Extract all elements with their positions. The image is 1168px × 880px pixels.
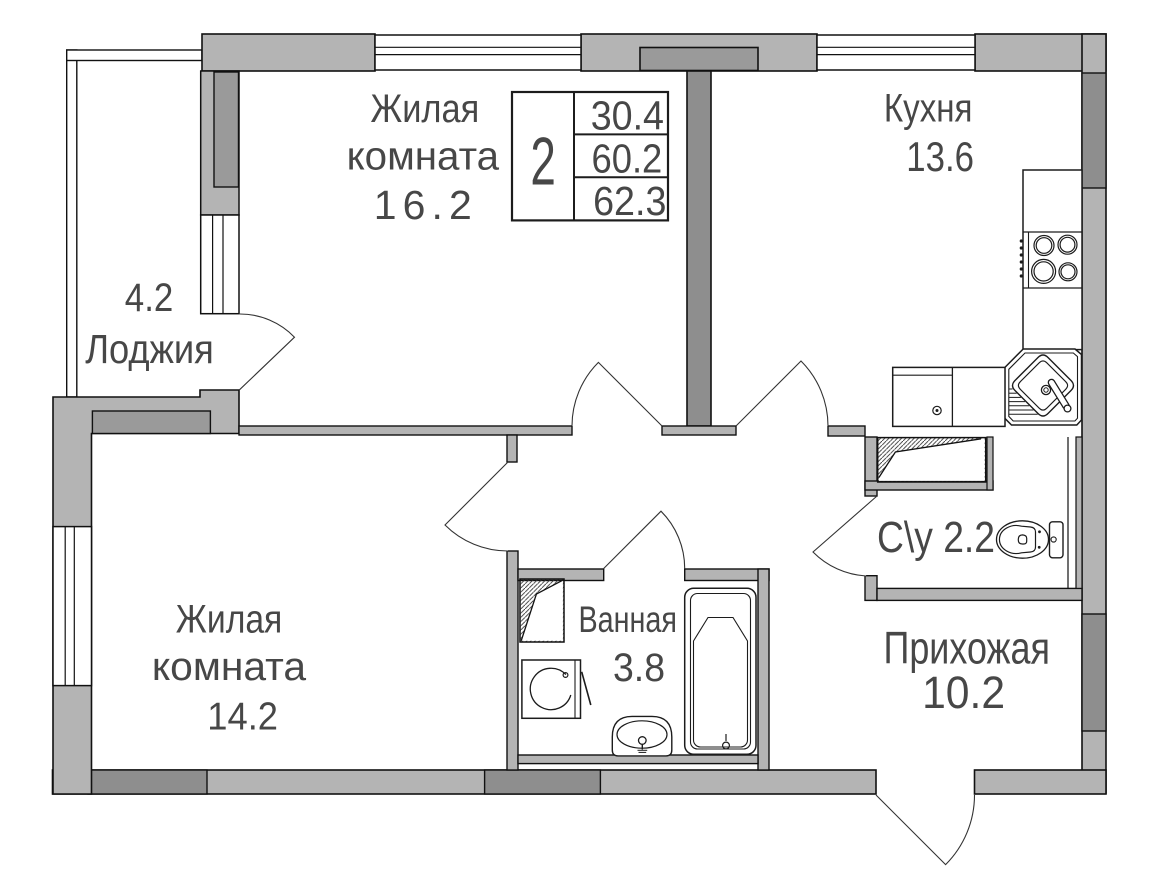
svg-text:Лоджия: Лоджия [85, 326, 214, 372]
svg-text:3.8: 3.8 [613, 646, 665, 690]
svg-text:2: 2 [530, 124, 556, 200]
svg-text:Кухня: Кухня [884, 87, 973, 131]
svg-text:С\у 2.2: С\у 2.2 [877, 513, 995, 562]
svg-text:Жилая: Жилая [176, 598, 282, 642]
svg-text:30.4: 30.4 [591, 93, 664, 139]
svg-text:60.2: 60.2 [592, 135, 663, 181]
svg-text:13.6: 13.6 [906, 133, 974, 180]
svg-text:14.2: 14.2 [207, 696, 278, 739]
svg-text:Жилая: Жилая [371, 87, 480, 131]
svg-text:комната: комната [347, 135, 500, 179]
svg-text:16.2: 16.2 [374, 182, 472, 228]
svg-text:62.3: 62.3 [593, 178, 666, 224]
svg-text:4.2: 4.2 [125, 276, 174, 320]
svg-text:Ванная: Ванная [579, 599, 678, 640]
svg-text:10.2: 10.2 [922, 667, 1005, 718]
svg-text:комната: комната [152, 645, 307, 689]
